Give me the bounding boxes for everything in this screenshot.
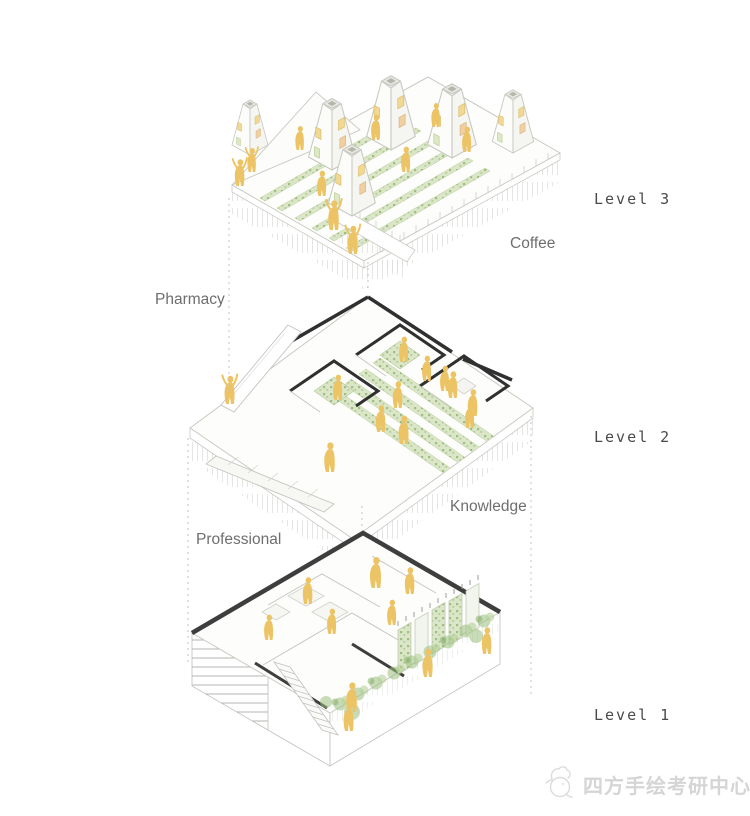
level2-drawing <box>190 297 533 571</box>
tower-icon <box>492 90 533 153</box>
level2-label: Level 2 <box>594 428 671 446</box>
watermark: 四方手绘考研中心 <box>540 763 750 805</box>
exploded-axonometric-diagram <box>0 0 750 816</box>
tower-icon <box>232 100 268 155</box>
level1-label: Level 1 <box>594 706 671 724</box>
watermark-text: 四方手绘考研中心 <box>583 770 750 799</box>
zone-label-knowledge: Knowledge <box>450 498 527 516</box>
zone-label-professional: Professional <box>196 531 281 549</box>
zone-label-pharmacy: Pharmacy <box>155 291 225 309</box>
diagram-canvas: Level 3 Coffee Pharmacy Level 2 Knowledg… <box>0 0 750 816</box>
sketch-rooster-logo-icon <box>540 763 578 805</box>
zone-label-coffee: Coffee <box>510 235 555 253</box>
level3-drawing <box>232 76 560 290</box>
level1-drawing <box>190 533 500 766</box>
level3-label: Level 3 <box>594 190 671 208</box>
